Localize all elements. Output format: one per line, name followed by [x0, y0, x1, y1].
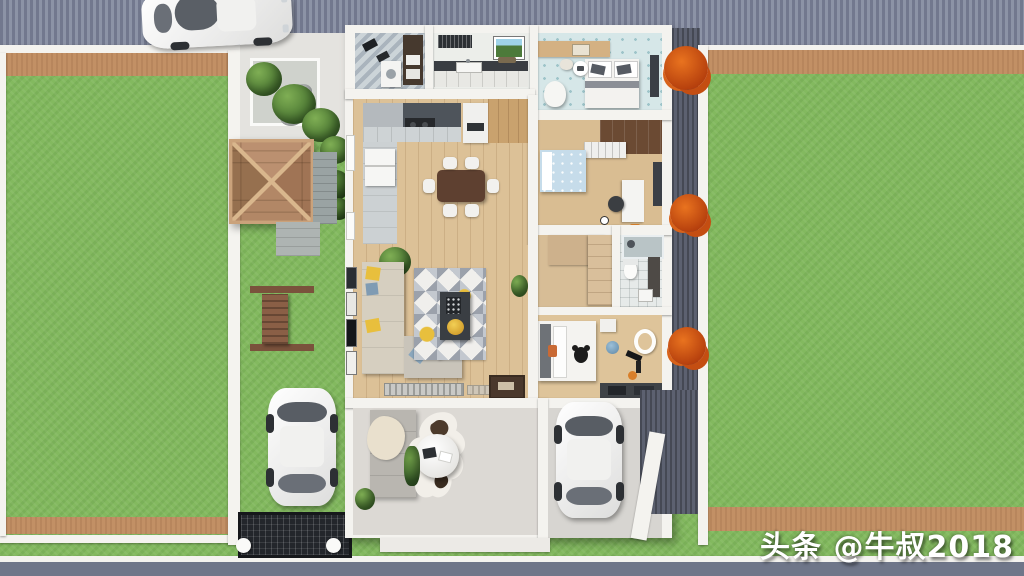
wall-partition [528, 95, 538, 405]
wall-art [347, 320, 356, 346]
car-windshield [565, 416, 614, 436]
right-garden-wall [698, 45, 708, 545]
counter-lower [363, 127, 461, 142]
car-rear-window [566, 487, 612, 506]
faucet [466, 59, 470, 63]
desk-chair [560, 59, 573, 70]
dining-chair [465, 204, 479, 217]
bath-sink [638, 289, 653, 302]
table-paper [438, 451, 453, 464]
bed-runner [585, 81, 639, 88]
dining-chair [465, 157, 479, 169]
wall-partition [345, 89, 535, 99]
counter-back-left [363, 103, 403, 127]
entry-wood-nook [488, 99, 530, 143]
office-chair [608, 196, 624, 212]
wall-partition [425, 25, 433, 95]
gate-roller [326, 538, 341, 553]
laundry-room [355, 33, 425, 89]
fridge [365, 149, 395, 186]
dining-table [437, 170, 485, 202]
wall-partition [530, 307, 672, 315]
pendant-lamp-icon [362, 38, 378, 52]
wall-art [347, 352, 356, 374]
left-boundary-wall [0, 53, 6, 536]
kids-bedroom [538, 120, 662, 225]
bedroom1-window [650, 55, 659, 97]
storage-box [406, 55, 420, 65]
pillow-blue [365, 282, 378, 295]
car-roof [280, 426, 325, 467]
kitchen-sink [456, 62, 482, 73]
wardrobe-side [588, 235, 614, 305]
wall-partition [345, 398, 672, 408]
wall-partition [538, 398, 548, 538]
pillow-accent [548, 345, 557, 357]
armchair [544, 81, 566, 107]
patio [353, 408, 538, 535]
living-room [353, 245, 528, 398]
ceiling-vent [438, 35, 472, 48]
desk-items [572, 44, 590, 56]
counter-items [498, 57, 516, 63]
car-roof [216, 0, 257, 32]
washer-door [386, 69, 396, 79]
car-wheel [554, 482, 562, 501]
wall-partition [612, 225, 620, 313]
wall-art [347, 268, 356, 288]
kids-bed [540, 150, 586, 192]
car-wheel [253, 37, 272, 46]
patio-step [380, 538, 550, 552]
wall-partition [530, 225, 672, 235]
orange-shrub [664, 46, 708, 90]
stone-path [276, 222, 320, 256]
white-car-courtyard [268, 388, 336, 506]
gate-roller [236, 538, 251, 553]
gazebo [228, 139, 315, 224]
kitchen-dining-room [353, 99, 530, 245]
dirt-strip-top-left [6, 53, 230, 76]
car-windshield [278, 474, 326, 493]
dining-chair [443, 157, 457, 169]
camera-badge-icon [573, 61, 588, 76]
radiator [384, 383, 464, 396]
car-wheel [616, 482, 624, 501]
panda-bed [538, 321, 596, 381]
patio-plant [355, 488, 375, 510]
kids-window [653, 162, 662, 206]
orange-shrub [670, 194, 708, 232]
nightstand [600, 319, 616, 332]
wall-art [347, 293, 356, 315]
doormat [489, 375, 525, 399]
west-window [346, 212, 355, 240]
toilet-tank [623, 259, 638, 265]
car-roof [567, 439, 611, 480]
watermark: 头条 @牛叔2018 [760, 522, 1014, 566]
white-car-carport [556, 402, 622, 518]
kids-desk [622, 180, 644, 222]
dirt-strip-bottom-left [0, 517, 230, 534]
car-wheel [330, 468, 338, 487]
dining-chair [487, 179, 499, 193]
black-decor [636, 361, 641, 373]
gazebo-roof [228, 139, 315, 224]
tall-cabinet [463, 103, 488, 143]
car-rear-window [153, 3, 172, 33]
table-tray [446, 297, 461, 314]
soccer-ball [600, 216, 609, 225]
storage-box [406, 69, 420, 79]
bench-bar [250, 286, 314, 293]
orange-shrub [668, 327, 706, 365]
wall-picture [494, 37, 524, 59]
dining-chair [443, 204, 457, 217]
pillow-yellow [365, 266, 381, 281]
master-bedroom [538, 315, 662, 398]
car-wheel [330, 414, 338, 433]
bench-bar [250, 344, 314, 351]
letter-o-decor [634, 329, 656, 354]
kitchen-cabinets [434, 71, 528, 87]
bench-seat [262, 294, 288, 344]
panda-ear [584, 345, 590, 351]
wall-partition [530, 110, 672, 120]
car-wheel [554, 425, 562, 444]
passage-plant [404, 446, 420, 486]
yellow-flowers [447, 319, 464, 335]
wall-partition [530, 25, 538, 95]
round-coffee-table [415, 434, 459, 478]
blue-stool [606, 341, 619, 354]
garden-bench [250, 286, 314, 352]
table-book [422, 447, 437, 459]
pillow [542, 152, 552, 190]
shower [622, 235, 664, 259]
side-plant [511, 275, 528, 297]
panda-ear [572, 345, 578, 351]
floorplan-render: 头条 @牛叔2018 [0, 0, 1024, 576]
bathroom [620, 235, 662, 307]
dining-chair [423, 179, 435, 193]
car-rear-window [277, 402, 327, 422]
car-headlight [282, 24, 288, 32]
courtyard-west-wall [228, 50, 240, 545]
car-wheel [266, 414, 274, 433]
dirt-strip-top-right [707, 50, 1024, 74]
white-car-street [141, 0, 294, 50]
hallway-wardrobe [538, 235, 614, 307]
car-wheel [266, 468, 274, 487]
small-kitchen [432, 33, 530, 89]
car-wheel [170, 41, 189, 50]
double-bed [585, 59, 639, 108]
orange-lamp [628, 371, 637, 380]
kids-dresser [584, 142, 626, 158]
car-wheel [616, 425, 624, 444]
boundary-wall-bottom-left [0, 535, 230, 543]
west-window [346, 135, 355, 171]
pillow-yellow [365, 318, 381, 333]
bedroom-1 [538, 33, 662, 110]
gazebo-stone-deck [313, 152, 337, 224]
